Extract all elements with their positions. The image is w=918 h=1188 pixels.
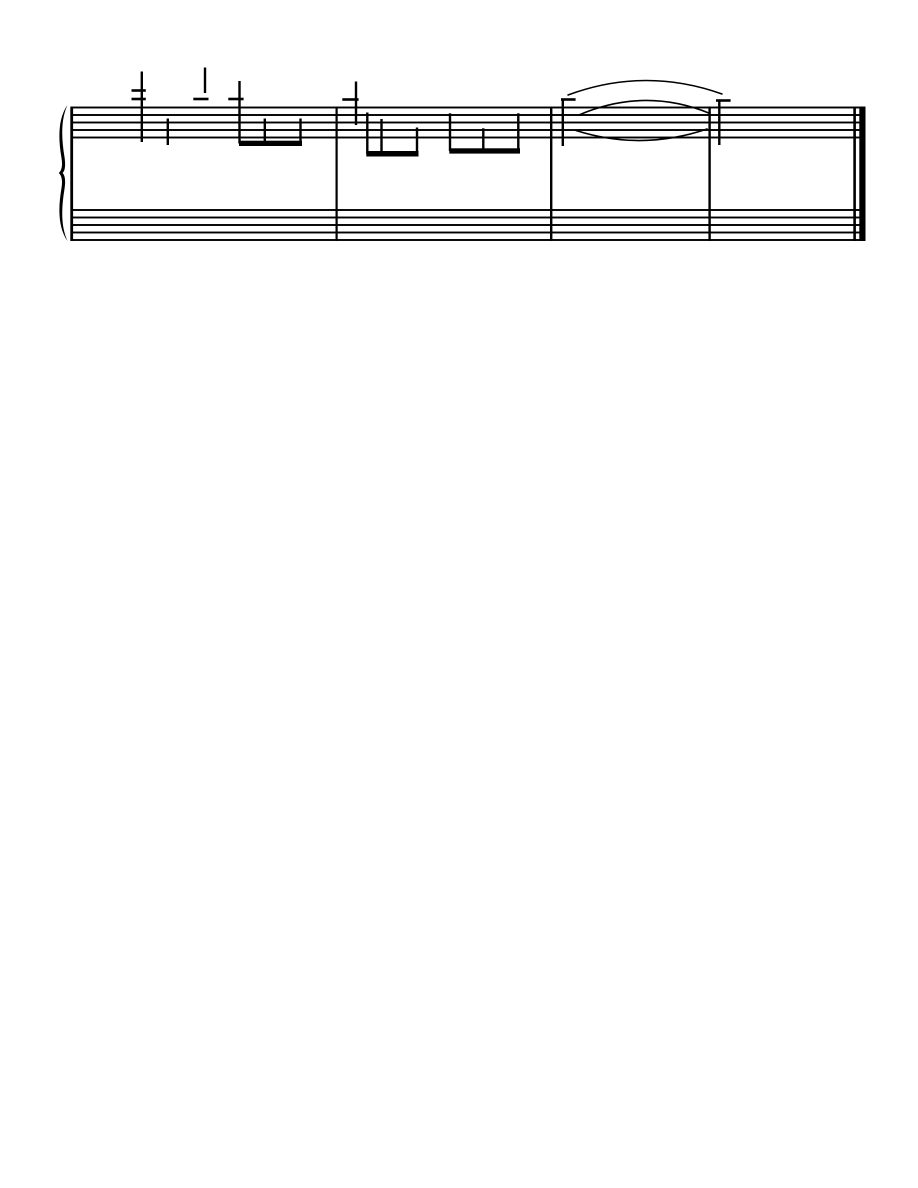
note-stem [204, 68, 206, 94]
bass-staff-line [71, 217, 866, 219]
eighth-note-beam [239, 141, 302, 146]
ledger-line [716, 99, 731, 102]
barline-system-start [70, 107, 73, 241]
bass-staff-line [71, 232, 866, 234]
note-stem [380, 119, 382, 154]
note-stem [366, 113, 368, 155]
note-stem [355, 82, 357, 126]
score-svg [0, 0, 918, 1188]
bass-staff-line [71, 209, 866, 211]
ledger-line [132, 98, 146, 101]
note-stem [167, 119, 169, 146]
barline-measure-1-end [336, 107, 338, 241]
barline-measure-3-end [708, 107, 710, 241]
barline-measure-2-end [550, 107, 552, 241]
barline-final-thin [853, 107, 856, 241]
treble-staff-line [71, 122, 866, 124]
grand-staff-brace [59, 105, 68, 241]
ledger-line [193, 98, 208, 101]
slur-above-staff-curve [568, 80, 722, 95]
barline-final-thick [859, 107, 865, 241]
note-stem [718, 101, 720, 145]
note-stem [449, 113, 451, 151]
note-stem [517, 113, 519, 151]
note-stem [264, 119, 266, 144]
sheet-music-page [0, 0, 918, 1188]
note-stem [141, 72, 143, 143]
treble-staff-line [71, 129, 866, 131]
treble-staff-line [71, 107, 866, 109]
ledger-line [132, 89, 146, 92]
ledger-line [228, 98, 243, 101]
treble-staff-line [71, 114, 866, 116]
bass-staff-line [71, 224, 866, 226]
note-stem [299, 119, 301, 144]
note-stem [482, 128, 484, 151]
ledger-line [342, 98, 358, 101]
treble-staff-line [71, 137, 866, 139]
eighth-note-beam [449, 148, 520, 153]
note-stem [238, 81, 240, 144]
bass-staff-line [71, 239, 866, 241]
note-stem [562, 100, 564, 147]
ledger-line [561, 98, 576, 101]
note-stem [416, 128, 418, 155]
eighth-note-beam [366, 151, 418, 157]
